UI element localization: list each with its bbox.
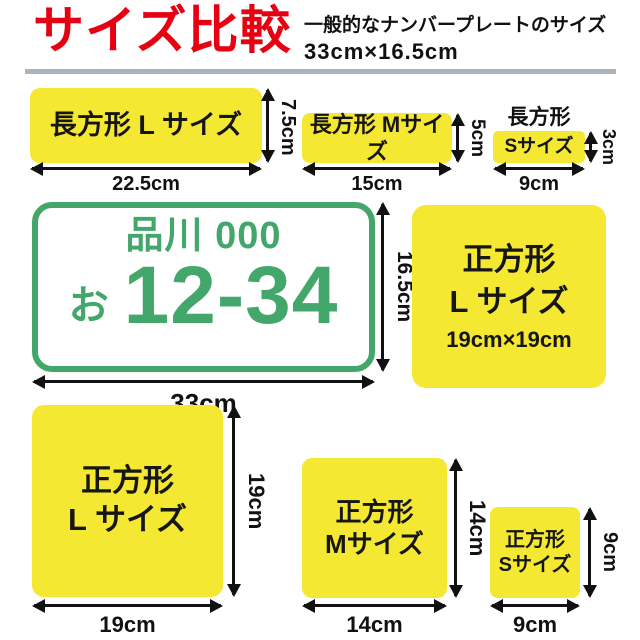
- square-l-info-dimensions: 19cm×19cm: [446, 326, 571, 354]
- square-l-info-type: 正方形: [463, 239, 556, 281]
- square-l-type: 正方形: [81, 462, 174, 501]
- size-comparison-graphic: サイズ比較 一般的なナンバープレートのサイズ 33cm×16.5cm 長方形 L…: [0, 0, 640, 640]
- square-s-type: 正方形: [505, 528, 565, 553]
- rect-s-width-label: 9cm: [493, 173, 585, 196]
- square-s-height-arrow: [588, 509, 591, 596]
- square-l-height-arrow: [232, 407, 235, 595]
- square-s-height-label: 9cm: [598, 507, 621, 598]
- square-s-width-arrow: [492, 604, 578, 607]
- rect-m-height-arrow: [456, 115, 459, 161]
- plate-width-arrow: [34, 380, 373, 383]
- rect-l-sticker: 長方形 L サイズ: [30, 88, 262, 163]
- square-m-width-label: 14cm: [302, 612, 447, 638]
- license-plate-mockup: 品川 000 お 12-34: [32, 202, 375, 372]
- square-s-size: Sサイズ: [499, 553, 572, 578]
- square-l-size: L サイズ: [68, 501, 187, 540]
- plate-number-row: お 12-34: [69, 257, 339, 335]
- square-l-width-label: 19cm: [32, 612, 223, 638]
- rect-s-height-label: 3cm: [598, 122, 619, 172]
- square-m-sticker: 正方形 Mサイズ: [302, 458, 447, 598]
- square-l-width-arrow: [34, 604, 221, 607]
- square-m-type: 正方形: [335, 496, 413, 529]
- page-title: サイズ比較: [33, 4, 291, 58]
- square-m-height-arrow: [454, 460, 457, 596]
- plate-hiragana: お: [69, 286, 109, 335]
- square-m-width-arrow: [304, 604, 445, 607]
- rect-l-width-arrow: [32, 167, 260, 170]
- plate-size-note-dimensions: 33cm×16.5cm: [304, 39, 606, 64]
- rect-l-width-label: 22.5cm: [30, 173, 262, 196]
- rect-l-height-arrow: [266, 90, 269, 161]
- rect-m-width-arrow: [304, 167, 450, 170]
- square-l-height-label: 19cm: [243, 405, 269, 597]
- square-s-width-label: 9cm: [490, 612, 580, 638]
- rect-s-width-arrow: [495, 167, 583, 170]
- plate-number: 12-34: [124, 257, 339, 335]
- square-l-info-size: L サイズ: [449, 281, 568, 323]
- rect-m-width-label: 15cm: [302, 173, 452, 196]
- square-m-size: Mサイズ: [325, 528, 424, 561]
- rect-l-height-label: 7.5cm: [276, 88, 299, 166]
- square-s-sticker: 正方形 Sサイズ: [490, 507, 580, 598]
- rect-m-height-label: 5cm: [466, 108, 488, 168]
- plate-size-note-text: 一般的なナンバープレートのサイズ: [304, 15, 606, 37]
- rect-s-type-label: 長方形: [493, 101, 585, 131]
- rect-s-height-arrow: [589, 133, 592, 161]
- rect-l-label: 長方形 L サイズ: [50, 109, 242, 143]
- header-divider: [25, 69, 616, 74]
- rect-s-sticker: Sサイズ: [493, 131, 585, 163]
- square-l-sticker: 正方形 L サイズ: [32, 405, 223, 597]
- rect-s-label: Sサイズ: [504, 135, 573, 159]
- square-m-height-label: 14cm: [464, 458, 490, 598]
- rect-m-label: 長方形 Mサイズ: [302, 111, 452, 166]
- plate-height-arrow: [381, 204, 384, 370]
- rect-m-sticker: 長方形 Mサイズ: [302, 113, 452, 163]
- plate-size-note: 一般的なナンバープレートのサイズ 33cm×16.5cm: [304, 15, 606, 64]
- square-l-info-sticker: 正方形 L サイズ 19cm×19cm: [412, 205, 606, 388]
